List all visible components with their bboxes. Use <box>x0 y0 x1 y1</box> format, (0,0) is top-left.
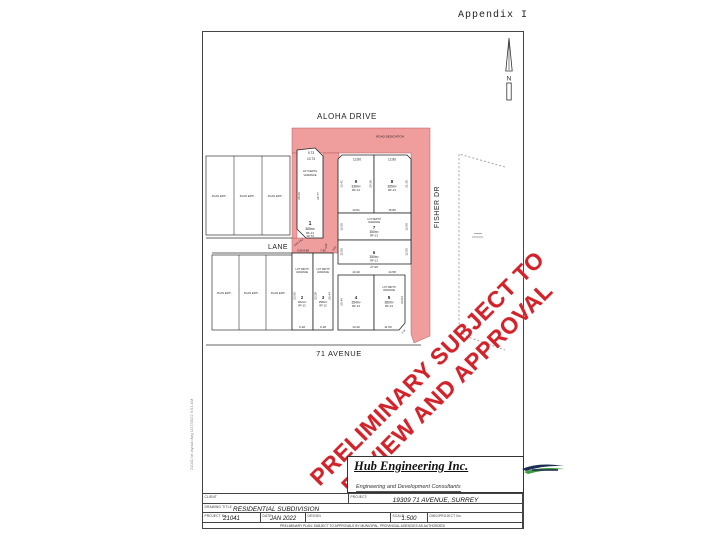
scale-cell: SCALE 1:500 <box>391 513 428 522</box>
existing-lot-text: PLAN EPP… <box>271 291 288 295</box>
dim: 10.73 <box>307 157 315 161</box>
dim: 9.18 <box>320 325 326 329</box>
title-block: CLIENT PROJECT: 19309 71 AVENUE, SURREY … <box>202 493 523 529</box>
dim: 27.99 <box>370 265 378 269</box>
title-block-row-numbers: PROJECT No. 21041 DATE JAN 2022 DESIGN S… <box>203 513 522 523</box>
lot-zone: RF-13 <box>370 234 378 238</box>
design-label: DESIGN <box>308 514 321 518</box>
date-value: JAN 2022 <box>261 516 305 522</box>
variance-note: VARIANCE <box>368 221 380 224</box>
existing-lots-lower: PLAN EPP… PLAN EPP… PLAN EPP… <box>212 255 292 330</box>
drawing-title-value: RESIDENTIAL SUBDIVISION <box>233 506 522 513</box>
dim: 12.00 <box>340 248 344 256</box>
lot-zone: RF-13 <box>352 304 360 308</box>
lot-1: 9.73 10.73 LOT DEPTH VARIANCE 20.26 26.7… <box>293 148 323 247</box>
project-value: 19309 71 AVENUE, SURREY <box>349 497 522 504</box>
dim: 12.00 <box>405 223 409 231</box>
date-cell: DATE JAN 2022 <box>261 513 306 522</box>
street-label-lane: LANE <box>268 244 288 251</box>
dim: 26.44 <box>328 292 332 300</box>
lot-3: 7.56 LOT WIDTH VARIANCE 23.28 26.44 3 29… <box>313 249 333 331</box>
existing-lots-upper: PLAN EPP… PLAN EPP… PLAN EPP… <box>206 156 290 235</box>
dim: 15.80 <box>388 208 396 212</box>
street-label-71-avenue: 71 AVENUE <box>316 349 362 358</box>
drawing-no-cell: DWG/PROJECT No. <box>428 513 522 522</box>
client-label: CLIENT <box>205 495 218 499</box>
company-name: Hub Engineering Inc. <box>354 459 468 474</box>
existing-lot-text: PLAN EPP… <box>212 194 229 198</box>
variance-note: VARIANCE <box>296 271 308 274</box>
dim: 13.41 <box>340 180 344 188</box>
dim: 13.40 <box>352 325 360 329</box>
dim: 23.60 <box>293 292 297 300</box>
street-label-fisher-dr: FISHER DR <box>434 186 441 228</box>
variance-note: LOT DEPTH <box>303 169 318 173</box>
design-cell: DESIGN <box>306 513 391 522</box>
illegible-annotation <box>472 233 483 238</box>
drawing-no-label: DWG/PROJECT No. <box>430 514 462 518</box>
lot-5: LOT WIDTH VARIANCE 5 380m² RF-13 11.59 2… <box>374 275 407 334</box>
lot-9: 12.80 13.41 24.38 9 336m² RF-13 13.81 <box>338 155 374 213</box>
variance-note: VARIANCE <box>383 289 395 292</box>
existing-lot-text: PLAN EPP… <box>217 291 234 295</box>
dim: 23.04 <box>400 296 404 304</box>
company-tagline: Engineering and Development Consultants <box>356 484 461 492</box>
dim: 5.32 <box>324 243 328 249</box>
dim: 26.44 <box>340 298 344 306</box>
disclaimer-strip: PRELIMINARY PLAN: SUBJECT TO APPROVALS B… <box>203 523 522 528</box>
dim: 10.73 <box>306 234 314 238</box>
title-block-row-client-project: CLIENT PROJECT: 19309 71 AVENUE, SURREY <box>203 494 522 504</box>
dim: 23.28 <box>314 292 318 300</box>
drawing-title-cell: DRAWING TITLE RESIDENTIAL SUBDIVISION <box>203 504 522 512</box>
dim: 0.50 8.68 <box>297 249 309 253</box>
dim: 13.81 <box>352 208 360 212</box>
lot-zone: RF-13 <box>352 188 360 192</box>
drawing-title-label: DRAWING TITLE <box>205 505 232 509</box>
title-block-row-drawing-title: DRAWING TITLE RESIDENTIAL SUBDIVISION <box>203 504 522 513</box>
dim: 12.80 <box>388 158 396 162</box>
street-label-aloha: ALOHA DRIVE <box>317 112 377 121</box>
client-cell: CLIENT <box>203 494 349 503</box>
dim: 12.05 <box>405 248 409 256</box>
existing-lot-text: PLAN EPP… <box>244 291 261 295</box>
lot-4: 26.44 4 354m² RF-13 13.40 <box>338 275 374 330</box>
existing-lot-text: PLAN EPP… <box>268 194 285 198</box>
lot-zone: RF-13 <box>319 303 327 307</box>
project-cell: PROJECT: 19309 71 AVENUE, SURREY <box>349 494 522 503</box>
dim: 13.40 <box>352 270 360 274</box>
north-letter: N <box>507 76 512 83</box>
dim: 12.00 <box>340 223 344 231</box>
dim: 21.35 <box>405 180 409 188</box>
dim: 9.18 <box>299 325 305 329</box>
variance-note: VARIANCE <box>303 173 316 177</box>
dim: 24.38 <box>369 180 373 188</box>
dim: 6.04 <box>401 328 407 334</box>
lot-zone: RF-13 <box>370 259 378 263</box>
variance-note: VARIANCE <box>317 271 329 274</box>
lot-zone: RF-13 <box>388 188 396 192</box>
dim: 12.80 <box>353 158 361 162</box>
disclaimer-text: PRELIMINARY PLAN: SUBJECT TO APPROVALS B… <box>280 524 445 528</box>
lot-zone: RF-13 <box>385 304 393 308</box>
project-no-cell: PROJECT No. 21041 <box>203 513 261 522</box>
lot-8: 12.80 21.35 8 365m² RF-13 15.80 <box>374 155 411 213</box>
dim: 20.26 <box>297 192 301 200</box>
north-arrow-icon: N <box>506 38 512 100</box>
lot-zone: RF-13 <box>298 303 306 307</box>
scanned-plan-page: Appendix I 21041 lot layout.dwg 1/27/202… <box>0 0 720 540</box>
lot-2: 0.50 8.68 LOT WIDTH VARIANCE 23.60 2 302… <box>292 249 313 331</box>
scale-value: 1:500 <box>391 516 427 522</box>
dim: 26.77 <box>316 192 320 200</box>
road-dedication-note: ROAD DEDICATION <box>376 135 405 139</box>
dim: 14.58 <box>388 270 396 274</box>
existing-lot-text: PLAN EPP… <box>240 194 257 198</box>
project-no-value: 21041 <box>203 516 260 522</box>
dim: 11.59 <box>384 325 392 329</box>
lot-6: 12.00 12.05 6 350m² RF-13 27.99 <box>338 240 411 269</box>
dim: 9.73 <box>308 151 314 155</box>
company-title-box: Hub Engineering Inc. Engineering and Dev… <box>347 456 524 493</box>
